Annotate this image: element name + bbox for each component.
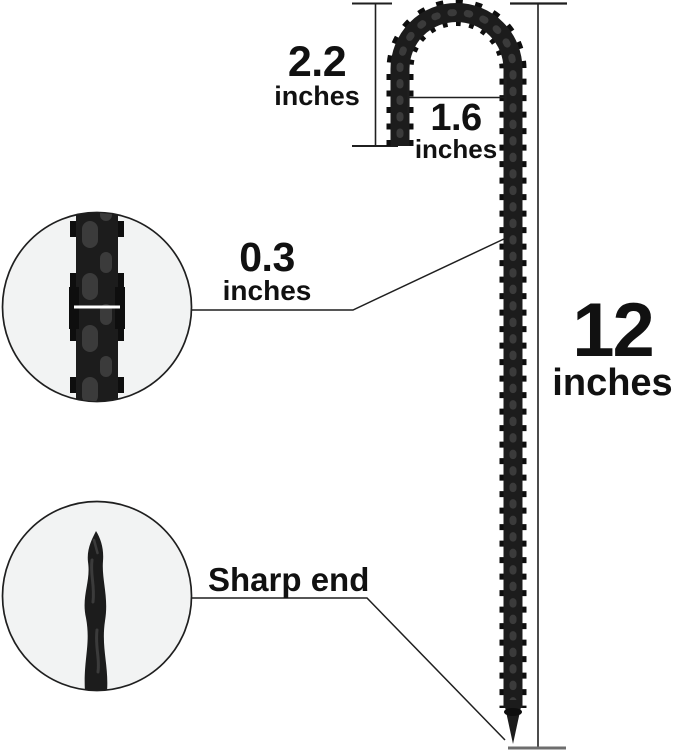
closeup-circle-sharp-end — [3, 502, 192, 693]
hook-height-unit: inches — [253, 83, 381, 110]
hook-height-label: 2.2 inches — [253, 41, 381, 110]
stake-tip — [504, 700, 523, 744]
hook-opening-unit: inches — [394, 136, 518, 162]
hook-opening-label: 1.6 inches — [394, 100, 518, 162]
total-length-label: 12 inches — [546, 299, 679, 403]
hook-opening-value: 1.6 — [394, 100, 518, 136]
sharp-end-label: Sharp end — [208, 561, 368, 599]
closeup-circle-diameter — [3, 211, 192, 403]
total-length-value: 12 — [546, 299, 679, 363]
leader-line-sharp-end — [191, 598, 505, 740]
rod-diameter-unit: inches — [205, 277, 329, 304]
stake-tip-rib — [504, 708, 522, 716]
total-length-unit: inches — [546, 363, 679, 403]
rod-diameter-value: 0.3 — [205, 237, 329, 277]
hook-height-value: 2.2 — [253, 41, 381, 83]
rod-diameter-label: 0.3 inches — [205, 237, 329, 304]
product-dimension-diagram: 2.2 inches 1.6 inches 0.3 inches 12 inch… — [0, 0, 679, 755]
